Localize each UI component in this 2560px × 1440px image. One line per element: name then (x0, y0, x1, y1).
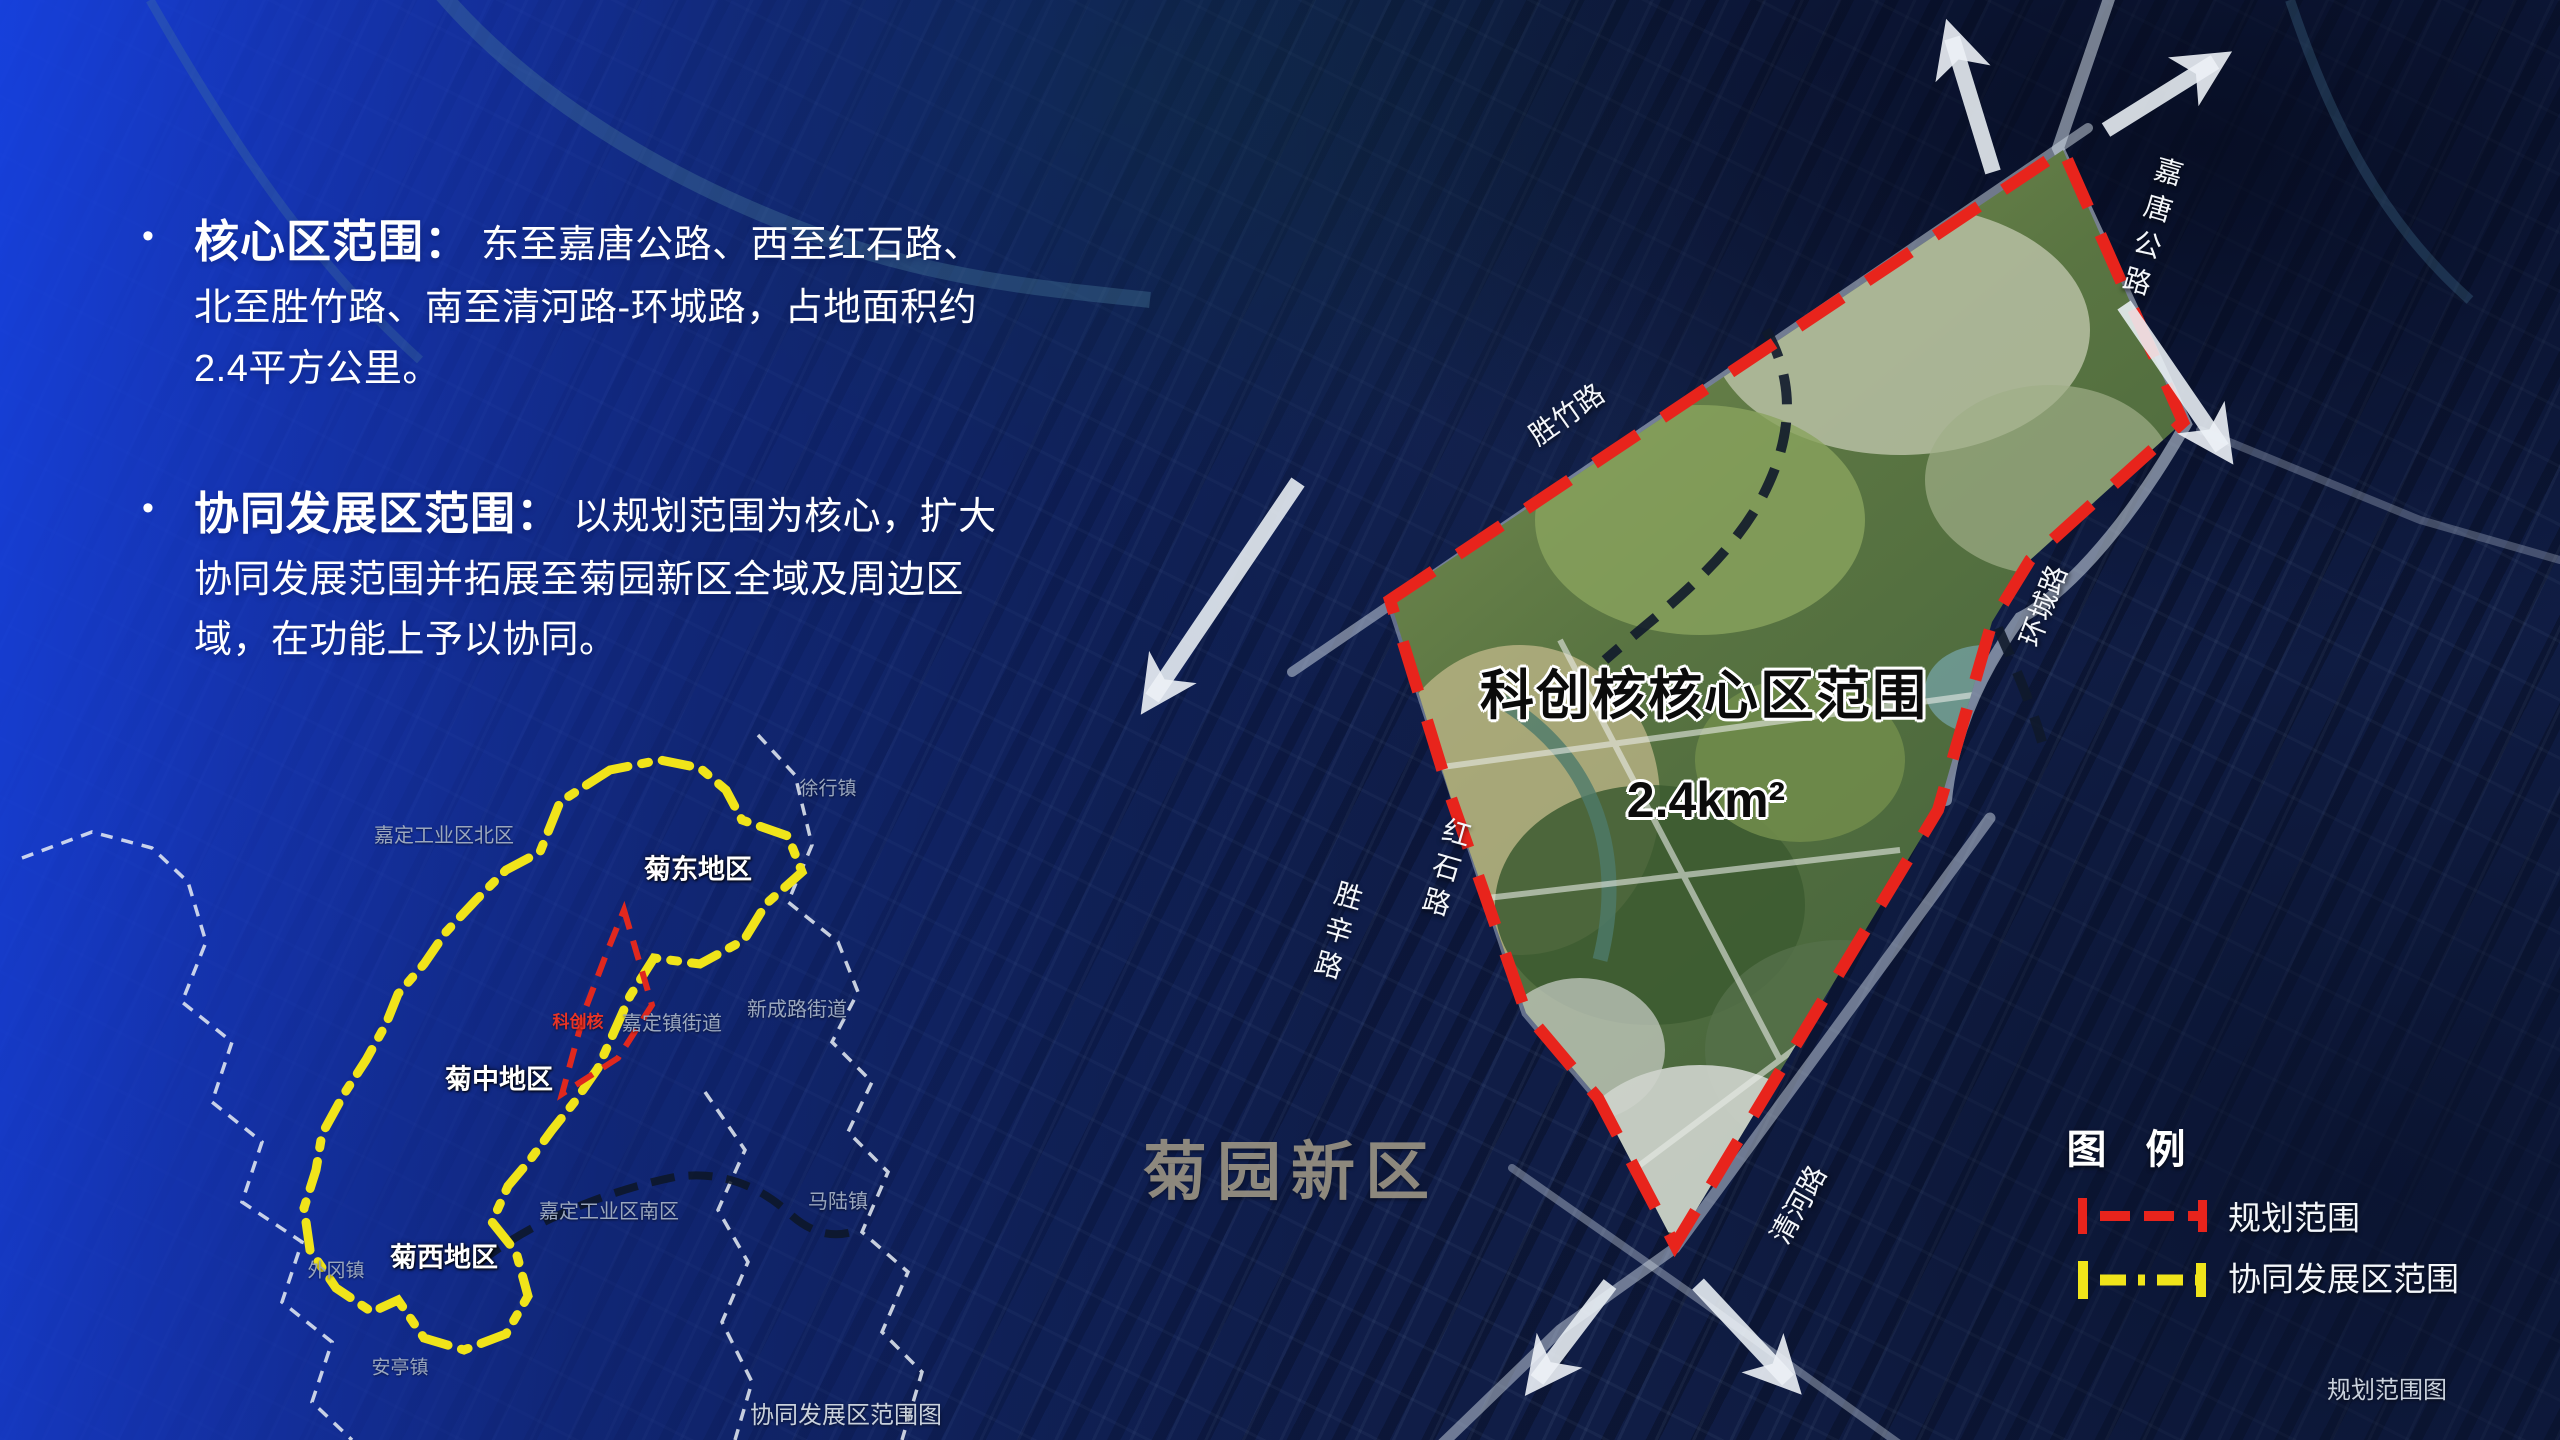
main-map-caption: 规划范围图 (2327, 1379, 2447, 1403)
inset-place-xuhang: 徐行镇 (799, 780, 856, 799)
arrow-bottom-right (1698, 1284, 1788, 1380)
arrow-bottom-left (1537, 1284, 1610, 1380)
inset-place-xinchenglu: 新成路街道 (747, 1000, 847, 1020)
district-name-label: 菊园新区 (1143, 1140, 1439, 1204)
inset-region-judong: 菊东地区 (644, 857, 752, 884)
legend-swatch-planning (2078, 1198, 2207, 1234)
bullet-cooperation-scope: • 协同发展区范围： 以规划范围为核心，扩大协同发展范围并拓展至菊园新区全域及周… (138, 478, 1006, 672)
bullet-marker: • (138, 478, 194, 672)
inset-cooperation-boundary-yellow (304, 760, 802, 1350)
legend-title: 图 例 (2066, 1130, 2199, 1170)
bullet-marker: • (138, 206, 194, 400)
core-area-size: 2.4km² (1627, 775, 1785, 825)
inset-place-waigang: 外冈镇 (307, 1262, 364, 1281)
legend-item-cooperation: 协同发展区范围 (2228, 1263, 2459, 1296)
bullet-core-scope-title: 核心区范围： (194, 216, 470, 267)
arrow-up-right (2106, 62, 2215, 130)
slide: • 核心区范围： 东至嘉唐公路、西至红石路、北至胜竹路、南至清河路-环城路，占地… (0, 0, 2560, 1440)
inset-place-industrial-north: 嘉定工业区北区 (374, 826, 514, 846)
arrow-up (1952, 38, 1993, 172)
arrow-left-down (1152, 482, 1298, 698)
inset-place-industrial-south: 嘉定工业区南区 (539, 1202, 679, 1222)
inset-region-juzhong: 菊中地区 (445, 1067, 553, 1094)
bullet-cooperation-scope-title: 协同发展区范围： (194, 488, 562, 539)
bullet-core-scope: • 核心区范围： 东至嘉唐公路、西至红石路、北至胜竹路、南至清河路-环城路，占地… (138, 206, 1006, 400)
inset-map-caption: 协同发展区范围图 (750, 1404, 942, 1428)
core-area-title: 科创核核心区范围 (1480, 669, 1928, 723)
inset-place-anting: 安亭镇 (371, 1359, 428, 1378)
inset-place-jiadingzhen: 嘉定镇街道 (622, 1014, 722, 1034)
legend-swatch-cooperation (2078, 1261, 2206, 1299)
inset-core-boundary-red (562, 910, 652, 1094)
legend-item-planning: 规划范围 (2228, 1202, 2360, 1235)
inset-place-malu: 马陆镇 (808, 1192, 868, 1212)
inset-core-label: 科创核 (553, 1014, 604, 1031)
info-panel: • 核心区范围： 东至嘉唐公路、西至红石路、北至胜竹路、南至清河路-环城路，占地… (138, 206, 1006, 749)
inset-region-juxi: 菊西地区 (390, 1245, 498, 1272)
bullet-core-scope-text: 核心区范围： 东至嘉唐公路、西至红石路、北至胜竹路、南至清河路-环城路，占地面积… (194, 206, 1006, 400)
bullet-cooperation-scope-text: 协同发展区范围： 以规划范围为核心，扩大协同发展范围并拓展至菊园新区全域及周边区… (194, 478, 1006, 672)
